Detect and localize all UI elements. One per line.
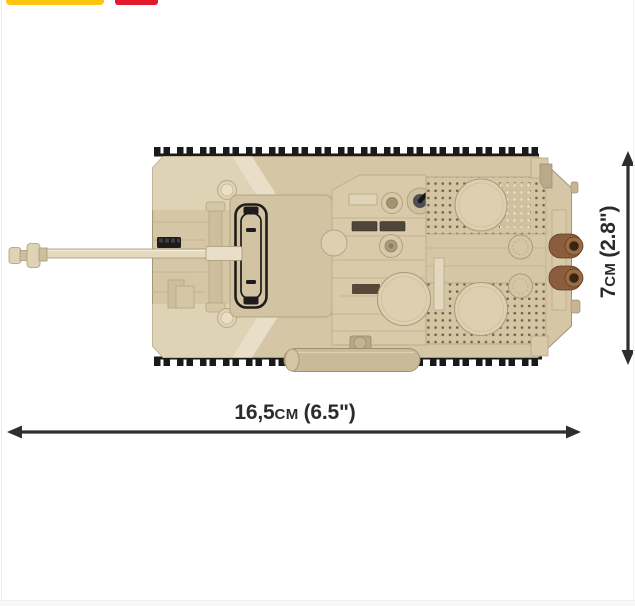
width-value: 16,5 — [234, 401, 274, 424]
height-value: 7 — [597, 287, 620, 298]
horizontal-dimension-arrow — [7, 426, 581, 439]
page-edge-bottom — [0, 600, 635, 606]
page-edge-right — [633, 0, 634, 601]
track-top — [154, 147, 539, 157]
tank-top-view-image — [0, 0, 635, 606]
height-imperial: (2.8") — [597, 206, 620, 258]
width-unit: CM — [275, 406, 299, 423]
page-edge-left — [1, 0, 2, 601]
height-unit: CM — [602, 263, 619, 287]
fan-cover — [455, 283, 508, 336]
fan-cover — [455, 179, 507, 231]
width-dimension-label: 16,5CM(6.5") — [234, 401, 355, 425]
height-dimension-label: 7CM(2.8") — [597, 206, 621, 299]
product-image-canvas: 16,5CM(6.5") 7CM(2.8") — [0, 0, 635, 606]
width-imperial: (6.5") — [304, 401, 356, 424]
tank-model — [9, 147, 583, 372]
fan-cover — [378, 273, 431, 326]
